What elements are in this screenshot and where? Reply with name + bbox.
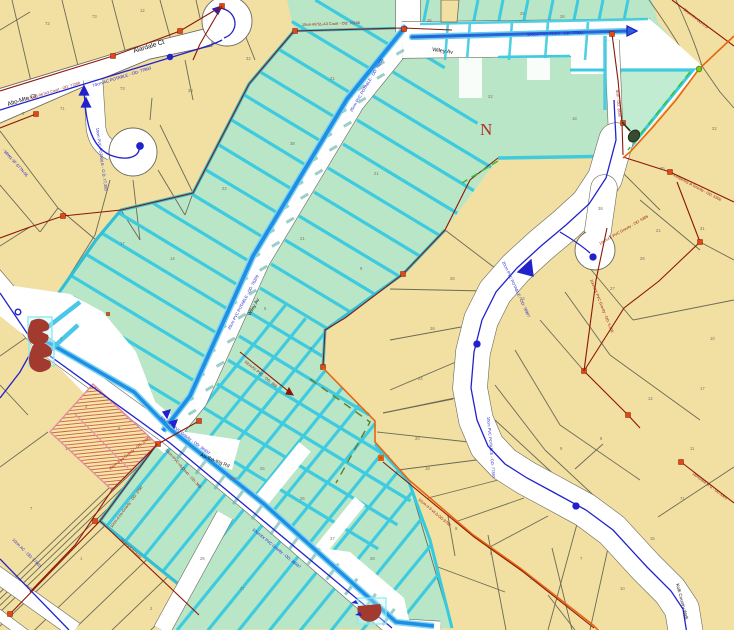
svg-text:26: 26: [300, 496, 305, 501]
svg-text:24: 24: [520, 296, 525, 301]
svg-text:14: 14: [170, 256, 175, 261]
svg-text:10: 10: [620, 586, 625, 591]
svg-text:73: 73: [92, 14, 97, 19]
svg-text:26: 26: [640, 256, 645, 261]
svg-text:22: 22: [488, 94, 493, 99]
svg-text:25A: 25A: [230, 476, 238, 481]
svg-text:38: 38: [188, 88, 193, 93]
svg-text:10: 10: [710, 336, 715, 341]
svg-text:17: 17: [120, 241, 125, 246]
svg-text:21: 21: [656, 228, 661, 233]
svg-text:31: 31: [700, 226, 705, 231]
svg-text:38: 38: [598, 206, 603, 211]
svg-text:27: 27: [330, 536, 335, 541]
svg-text:18: 18: [572, 116, 577, 121]
svg-text:21: 21: [374, 171, 379, 176]
svg-text:72: 72: [45, 21, 50, 26]
svg-text:21: 21: [300, 236, 305, 241]
svg-text:N: N: [480, 120, 492, 139]
svg-text:12: 12: [648, 396, 653, 401]
svg-text:71: 71: [60, 106, 65, 111]
svg-text:71: 71: [680, 496, 685, 501]
svg-text:22: 22: [246, 56, 251, 61]
svg-text:18: 18: [425, 466, 430, 471]
svg-text:22: 22: [712, 126, 717, 131]
svg-text:21: 21: [330, 76, 335, 81]
svg-text:38: 38: [290, 141, 295, 146]
svg-text:26: 26: [200, 556, 205, 561]
svg-text:15: 15: [650, 536, 655, 541]
svg-text:26: 26: [560, 14, 565, 19]
svg-text:11: 11: [690, 446, 695, 451]
svg-text:35: 35: [660, 166, 665, 171]
svg-text:20: 20: [180, 466, 185, 471]
svg-text:28: 28: [370, 556, 375, 561]
svg-text:24: 24: [418, 376, 423, 381]
svg-text:25: 25: [520, 11, 525, 16]
svg-text:25: 25: [260, 466, 265, 471]
svg-text:17: 17: [700, 386, 705, 391]
svg-text:73: 73: [120, 86, 125, 91]
svg-text:20: 20: [415, 436, 420, 441]
svg-text:28: 28: [450, 276, 455, 281]
svg-text:27: 27: [610, 286, 615, 291]
svg-text:27: 27: [240, 586, 245, 591]
svg-text:12: 12: [140, 8, 145, 13]
svg-text:25: 25: [427, 18, 432, 23]
svg-text:26: 26: [430, 326, 435, 331]
svg-text:22: 22: [222, 186, 227, 191]
